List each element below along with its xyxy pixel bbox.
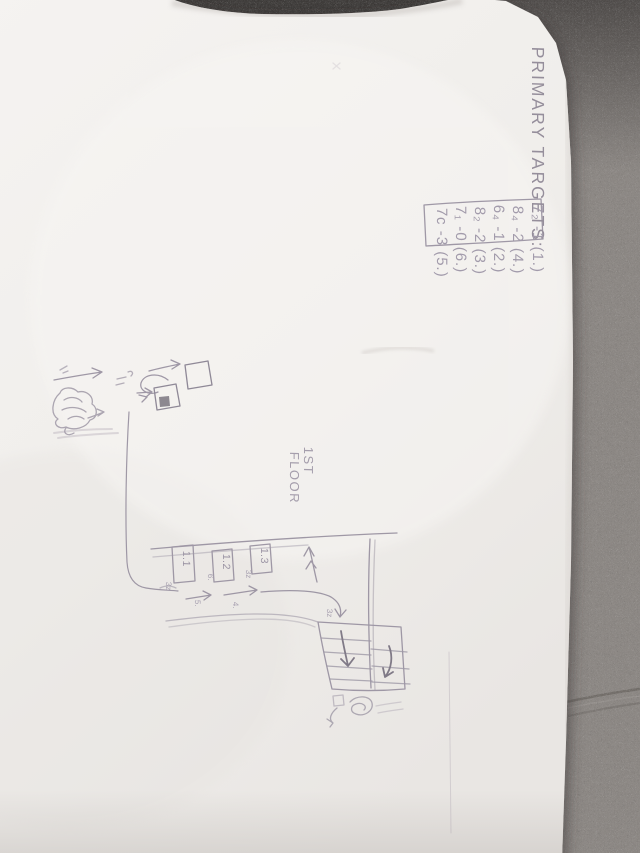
- marked-corner-fill: [159, 396, 170, 407]
- target-line-2: 8₄ -2 (4.): [510, 205, 525, 274]
- floor-label-line2: FLOOR: [288, 452, 301, 505]
- room-note-1: 3z: [164, 582, 172, 591]
- stair-mark: 3z: [325, 609, 333, 618]
- target-line-1: 7₂ -1 (1.): [530, 204, 545, 273]
- room-note-3: 3z: [244, 570, 252, 579]
- room-label-1-1: 1.1: [181, 551, 192, 567]
- room-label-1-3: 1.3: [259, 548, 270, 564]
- target-line-3: 6₄ -1 (2.): [491, 204, 506, 273]
- room-note-2: 6.: [206, 574, 214, 581]
- floor-label-line1: 1ST: [302, 447, 315, 476]
- target-line-5: 7₁ -0 (6.): [453, 205, 468, 273]
- corridor-mark-1: 5.: [193, 600, 201, 607]
- target-line-6: 7c -3 (5.): [434, 207, 449, 278]
- corridor-mark-2: 4.: [231, 602, 239, 609]
- target-line-4: 8₂ -2 (3.): [472, 206, 487, 275]
- room-label-1-2: 1.2: [221, 554, 232, 570]
- photo-of-pencil-sketch: PRIMARY TARGETS: 7₂ -1 (1.) 8₄ -2 (4.) 6…: [0, 0, 640, 853]
